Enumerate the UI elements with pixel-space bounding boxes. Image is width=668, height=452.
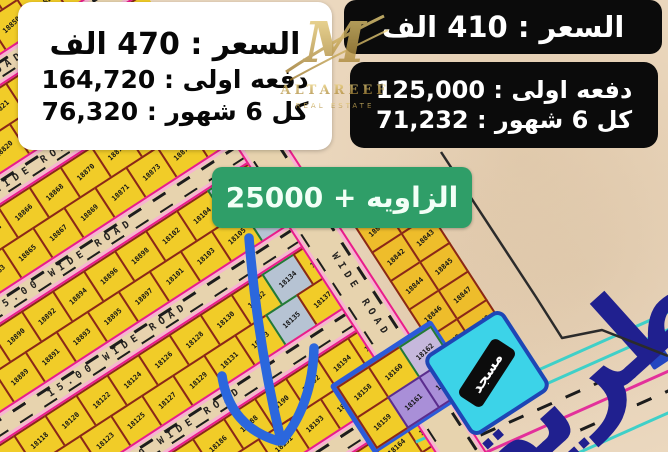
plot-number: 18847 <box>452 285 473 305</box>
plot-number: 18105 <box>227 226 248 246</box>
logo-monogram: M <box>302 10 368 76</box>
plot-number: 18869 <box>79 203 100 223</box>
plot-number: 18820 <box>0 139 15 159</box>
plot-number: 18870 <box>76 162 97 182</box>
plot-number: 18161 <box>403 392 424 412</box>
price-right: السعر : 410 الف <box>382 10 625 44</box>
plot-number: 18868 <box>44 182 65 202</box>
plot-number: 18889 <box>10 367 31 387</box>
plot-number: 18864 <box>0 223 3 243</box>
plot-number: 18844 <box>404 276 425 296</box>
plot-number: 18895 <box>103 307 124 327</box>
plot-number: 18122 <box>91 390 112 410</box>
plot-number: 18104 <box>192 206 213 226</box>
plot-number: 18186 <box>208 434 229 452</box>
plot-number: 18873 <box>141 162 162 182</box>
plot-number: 18896 <box>99 266 120 286</box>
plot-number: 18863 <box>0 263 7 283</box>
plot-number: 18158 <box>353 382 374 402</box>
plot-number: 18160 <box>384 362 405 382</box>
plot-number: 18101 <box>165 267 186 287</box>
plot-number: 18188 <box>239 414 260 434</box>
plot-number: 18898 <box>130 246 151 266</box>
plot-number: 18871 <box>110 183 131 203</box>
plot-number: 18128 <box>184 330 205 350</box>
plot-number: 18134 <box>278 270 299 290</box>
plot-number: 18192 <box>301 374 322 394</box>
real-estate-ad: 1883118833188351883718839188411884318845… <box>0 0 668 452</box>
plot-number: 18890 <box>6 327 27 347</box>
plot-number: 18193 <box>305 414 326 434</box>
plot-number: 18123 <box>95 431 116 451</box>
installment-right: كل 6 شهور : 71,232 <box>376 106 632 134</box>
plot-number: 18118 <box>29 431 50 451</box>
mosque-label: مسجد <box>457 337 518 409</box>
plot-number: 18191 <box>274 434 295 452</box>
plot-number: 18127 <box>157 391 178 411</box>
plot-number: 18132 <box>247 290 268 310</box>
plot-number: 18125 <box>126 411 147 431</box>
plot-number: 18102 <box>161 226 182 246</box>
plot-number: 18120 <box>60 411 81 431</box>
plot-number: 18194 <box>332 353 353 373</box>
down-payment-right: دفعه اولى : 125,000 <box>376 76 633 104</box>
corner-price-badge: الزاويه + 25000 <box>212 167 472 228</box>
plot-number: 18866 <box>13 203 34 223</box>
plot-number: 18190 <box>270 394 291 414</box>
plot-number: 18842 <box>386 247 407 267</box>
plot-number: 18133 <box>250 330 271 350</box>
logo-name: ALTAREEF <box>279 83 389 98</box>
plot-number: 18892 <box>37 307 58 327</box>
plot-number: 18867 <box>48 223 69 243</box>
plot-number: 18126 <box>153 350 174 370</box>
plot-number: 18135 <box>281 310 302 330</box>
plot-number: 18159 <box>372 412 393 432</box>
price-left: السعر : 470 الف <box>50 27 301 62</box>
plot-number: 18124 <box>122 370 143 390</box>
plot-number: 18893 <box>72 327 93 347</box>
plot-number: 18843 <box>415 228 436 248</box>
agency-logo: M ALTAREEF REAL ESTATE <box>268 0 402 120</box>
plot-number: 18845 <box>434 257 455 277</box>
plot-number: 18821 <box>0 99 11 119</box>
plot-number: 18131 <box>219 350 240 370</box>
logo-subtitle: REAL ESTATE <box>296 102 375 110</box>
plot-number: 18894 <box>68 286 89 306</box>
plot-number: 18103 <box>196 246 217 266</box>
plot-number: 18891 <box>41 347 62 367</box>
plot-number: 18865 <box>17 243 38 263</box>
plot-number: 18129 <box>188 371 209 391</box>
plot-number: 18897 <box>134 287 155 307</box>
plot-number: 18130 <box>215 310 236 330</box>
